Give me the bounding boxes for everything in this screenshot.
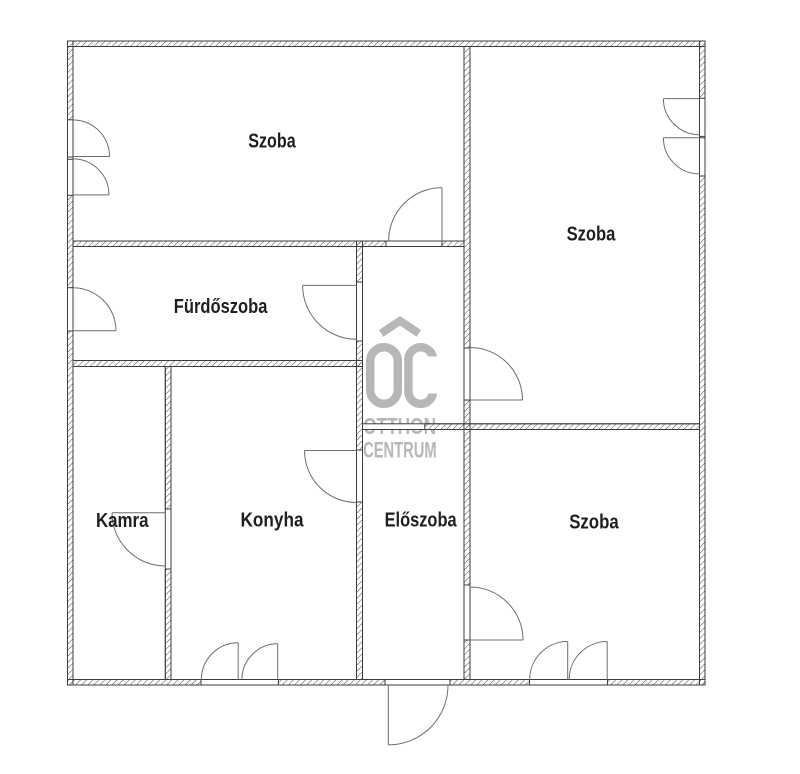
svg-text:Szoba: Szoba [567,224,617,246]
svg-text:Fürdőszoba: Fürdőszoba [174,296,268,318]
svg-text:Szoba: Szoba [569,512,619,534]
svg-text:Előszoba: Előszoba [385,510,458,532]
svg-text:CENTRUM: CENTRUM [363,438,437,463]
svg-text:Kamra: Kamra [96,510,149,532]
svg-text:Szoba: Szoba [248,131,296,153]
svg-text:Konyha: Konyha [241,510,305,532]
